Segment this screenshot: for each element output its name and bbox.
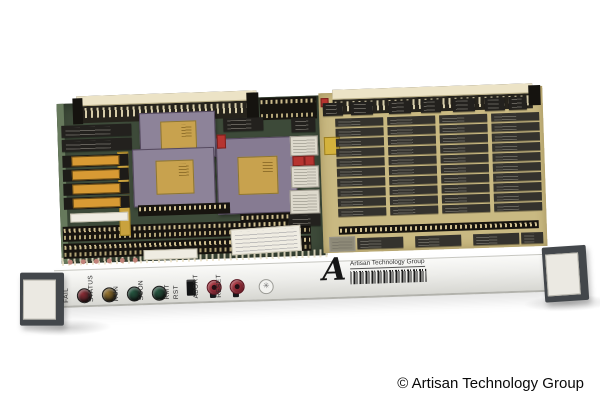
logic-chip — [291, 117, 315, 132]
chip-marking — [392, 102, 405, 111]
handwritten-label — [230, 225, 302, 256]
memory-chip — [473, 233, 519, 246]
chip-marking — [391, 137, 413, 144]
memory-chip — [491, 112, 539, 122]
memory-chip — [335, 127, 383, 137]
chip-marking — [495, 134, 517, 141]
chip-marking — [443, 146, 465, 153]
memory-chip — [492, 142, 540, 152]
memory-chip — [493, 162, 541, 172]
socket-pins — [261, 98, 316, 104]
lid-marking — [262, 160, 272, 172]
chip-marking — [341, 209, 363, 216]
handle-pad — [545, 252, 581, 296]
chip-marking — [338, 119, 360, 126]
memory-chip — [389, 165, 437, 175]
chip-marking — [512, 99, 522, 108]
chip-marking — [443, 136, 465, 143]
eprom-window — [72, 183, 120, 195]
chip-marking — [444, 185, 466, 192]
eprom-window — [72, 169, 120, 181]
chip-marking — [445, 195, 467, 202]
chip-marking — [326, 105, 337, 114]
chip-marking — [393, 197, 415, 204]
module-label — [332, 239, 352, 249]
connector-end-block — [528, 85, 541, 105]
memory-chip — [441, 174, 489, 184]
logic-chip — [389, 100, 411, 114]
memory-chip — [337, 177, 385, 187]
chip-marking — [354, 104, 367, 113]
toggle-label: ABORT — [192, 274, 200, 299]
logic-chip — [485, 97, 505, 111]
connector-end-block — [72, 98, 83, 124]
chip-marking — [341, 189, 363, 196]
barcode — [350, 269, 426, 285]
memory-chip — [441, 184, 489, 194]
memory-chip — [388, 135, 436, 145]
small-label — [70, 212, 128, 223]
memory-chip — [440, 144, 488, 154]
led-label: SCON — [137, 280, 145, 301]
chip-marking — [495, 144, 517, 151]
eprom-chip — [64, 196, 130, 210]
chip-marking — [524, 233, 534, 242]
chip-marking — [497, 204, 519, 211]
memory-chip — [492, 132, 540, 142]
remote-reset-label: RST — [173, 285, 180, 299]
memory-chip — [336, 147, 384, 157]
logic-chip — [453, 98, 475, 112]
chip-marking — [444, 165, 466, 172]
led-label: FAIL — [63, 288, 70, 303]
memory-chip — [388, 145, 436, 155]
memory-chip — [337, 187, 385, 197]
led-label: STATUS — [87, 275, 95, 302]
chip-marking — [341, 199, 363, 206]
module-label — [294, 168, 317, 185]
ejector-handle-right — [542, 245, 590, 303]
vme-board-assembly: ✳ A Artisan Technology Group FAILSTATUSR… — [0, 0, 600, 400]
pga-chip — [132, 147, 216, 208]
memory-chip — [336, 137, 384, 147]
led-label: RUN — [113, 286, 121, 302]
chip-marking — [497, 194, 519, 201]
chip-marking — [496, 184, 518, 191]
chip-marking — [444, 175, 466, 182]
memory-chip — [439, 114, 487, 124]
chip-marking — [295, 120, 308, 130]
chip-marking — [445, 205, 467, 212]
module-label — [293, 192, 318, 211]
pga-gold-lid — [155, 160, 194, 195]
toggle-label: RESET — [215, 274, 223, 298]
red-jumper — [304, 155, 314, 165]
chip-marking — [393, 207, 415, 214]
product-photo: ✳ A Artisan Technology Group FAILSTATUSR… — [0, 0, 600, 400]
eprom-chip — [63, 168, 129, 182]
module-label — [293, 138, 315, 153]
memory-chip — [493, 172, 541, 182]
chip-marking — [340, 179, 362, 186]
red-jumper — [292, 156, 304, 166]
chip-marking — [442, 126, 464, 133]
chip-marking — [391, 147, 413, 154]
memory-chip — [337, 167, 385, 177]
chip-marking — [495, 154, 517, 161]
chip-marking — [392, 177, 414, 184]
chip-marking — [456, 100, 469, 109]
oscillator-module — [290, 135, 319, 156]
chip-marking — [339, 139, 361, 146]
lid-marking — [179, 164, 189, 176]
memory-chip — [492, 152, 540, 162]
remote-reset-label: RMT — [164, 284, 172, 300]
memory-chip — [440, 134, 488, 144]
oscillator-module — [291, 165, 320, 188]
memory-chip — [440, 154, 488, 164]
logic-chip — [61, 124, 131, 138]
socket-pins — [139, 204, 229, 211]
memory-chip — [415, 235, 461, 248]
memory-chip — [493, 182, 541, 192]
oscillator-module — [290, 189, 321, 214]
capacitor — [94, 259, 99, 264]
memory-chip — [338, 207, 386, 217]
chip-marking — [340, 169, 362, 176]
memory-chip — [357, 237, 403, 250]
memory-chip — [387, 125, 435, 135]
lid-marking — [181, 125, 191, 137]
chip-marking — [476, 234, 497, 244]
logic-chip — [421, 99, 441, 113]
artisan-logo-icon: A — [322, 255, 347, 286]
memory-chip — [338, 197, 386, 207]
memory-chip — [439, 124, 487, 134]
chip-marking — [339, 149, 361, 156]
eprom-chip — [62, 154, 128, 168]
chip-marking — [392, 187, 414, 194]
memory-chip — [494, 192, 542, 202]
small-label — [143, 248, 197, 260]
memory-chip — [442, 204, 490, 214]
chip-marking — [65, 126, 110, 135]
memory-chip — [442, 194, 490, 204]
chip-marking — [292, 216, 311, 225]
copyright-text: © Artisan Technology Group — [397, 375, 584, 392]
memory-chip — [387, 115, 435, 125]
chip-marking — [392, 167, 414, 174]
logic-chip — [351, 102, 373, 116]
pga-gold-lid — [237, 156, 278, 195]
chip-marking — [391, 157, 413, 164]
chip-marking — [418, 236, 439, 246]
memory-chip — [390, 195, 438, 205]
memory-chip — [335, 117, 383, 127]
handle-pad — [23, 280, 56, 320]
memory-chip — [441, 164, 489, 174]
eprom-window — [71, 155, 119, 167]
toggle-cap-center — [235, 284, 240, 289]
chip-marking — [360, 238, 381, 248]
eprom-window — [73, 197, 121, 209]
chip-marking — [443, 156, 465, 163]
logic-chip — [62, 138, 132, 152]
connector-end-block — [246, 92, 259, 118]
memory-chip — [389, 175, 437, 185]
label-text — [235, 228, 298, 252]
memory-chip — [521, 232, 543, 244]
memory-chip — [494, 202, 542, 212]
chip-marking — [227, 120, 251, 130]
ejector-handle-left — [20, 273, 64, 326]
chip-marking — [494, 114, 516, 121]
memory-small-module — [329, 236, 355, 252]
red-jumper — [217, 134, 226, 148]
memory-chip — [491, 122, 539, 132]
eprom-chip — [63, 182, 129, 196]
memory-chip — [389, 185, 437, 195]
logic-chip — [323, 103, 343, 117]
chip-marking — [339, 129, 361, 136]
chip-marking — [66, 140, 111, 149]
chip-marking — [496, 174, 518, 181]
memory-chip — [336, 157, 384, 167]
memory-chip — [388, 155, 436, 165]
logic-chip — [223, 117, 263, 131]
chip-marking — [390, 117, 412, 124]
memory-chip — [390, 205, 438, 215]
chip-marking — [390, 127, 412, 134]
chip-marking — [496, 164, 518, 171]
chip-marking — [442, 116, 464, 123]
logic-chip — [509, 96, 527, 110]
chip-marking — [494, 124, 516, 131]
chip-marking — [424, 101, 435, 110]
chip-marking — [340, 159, 362, 166]
chip-marking — [488, 99, 499, 108]
